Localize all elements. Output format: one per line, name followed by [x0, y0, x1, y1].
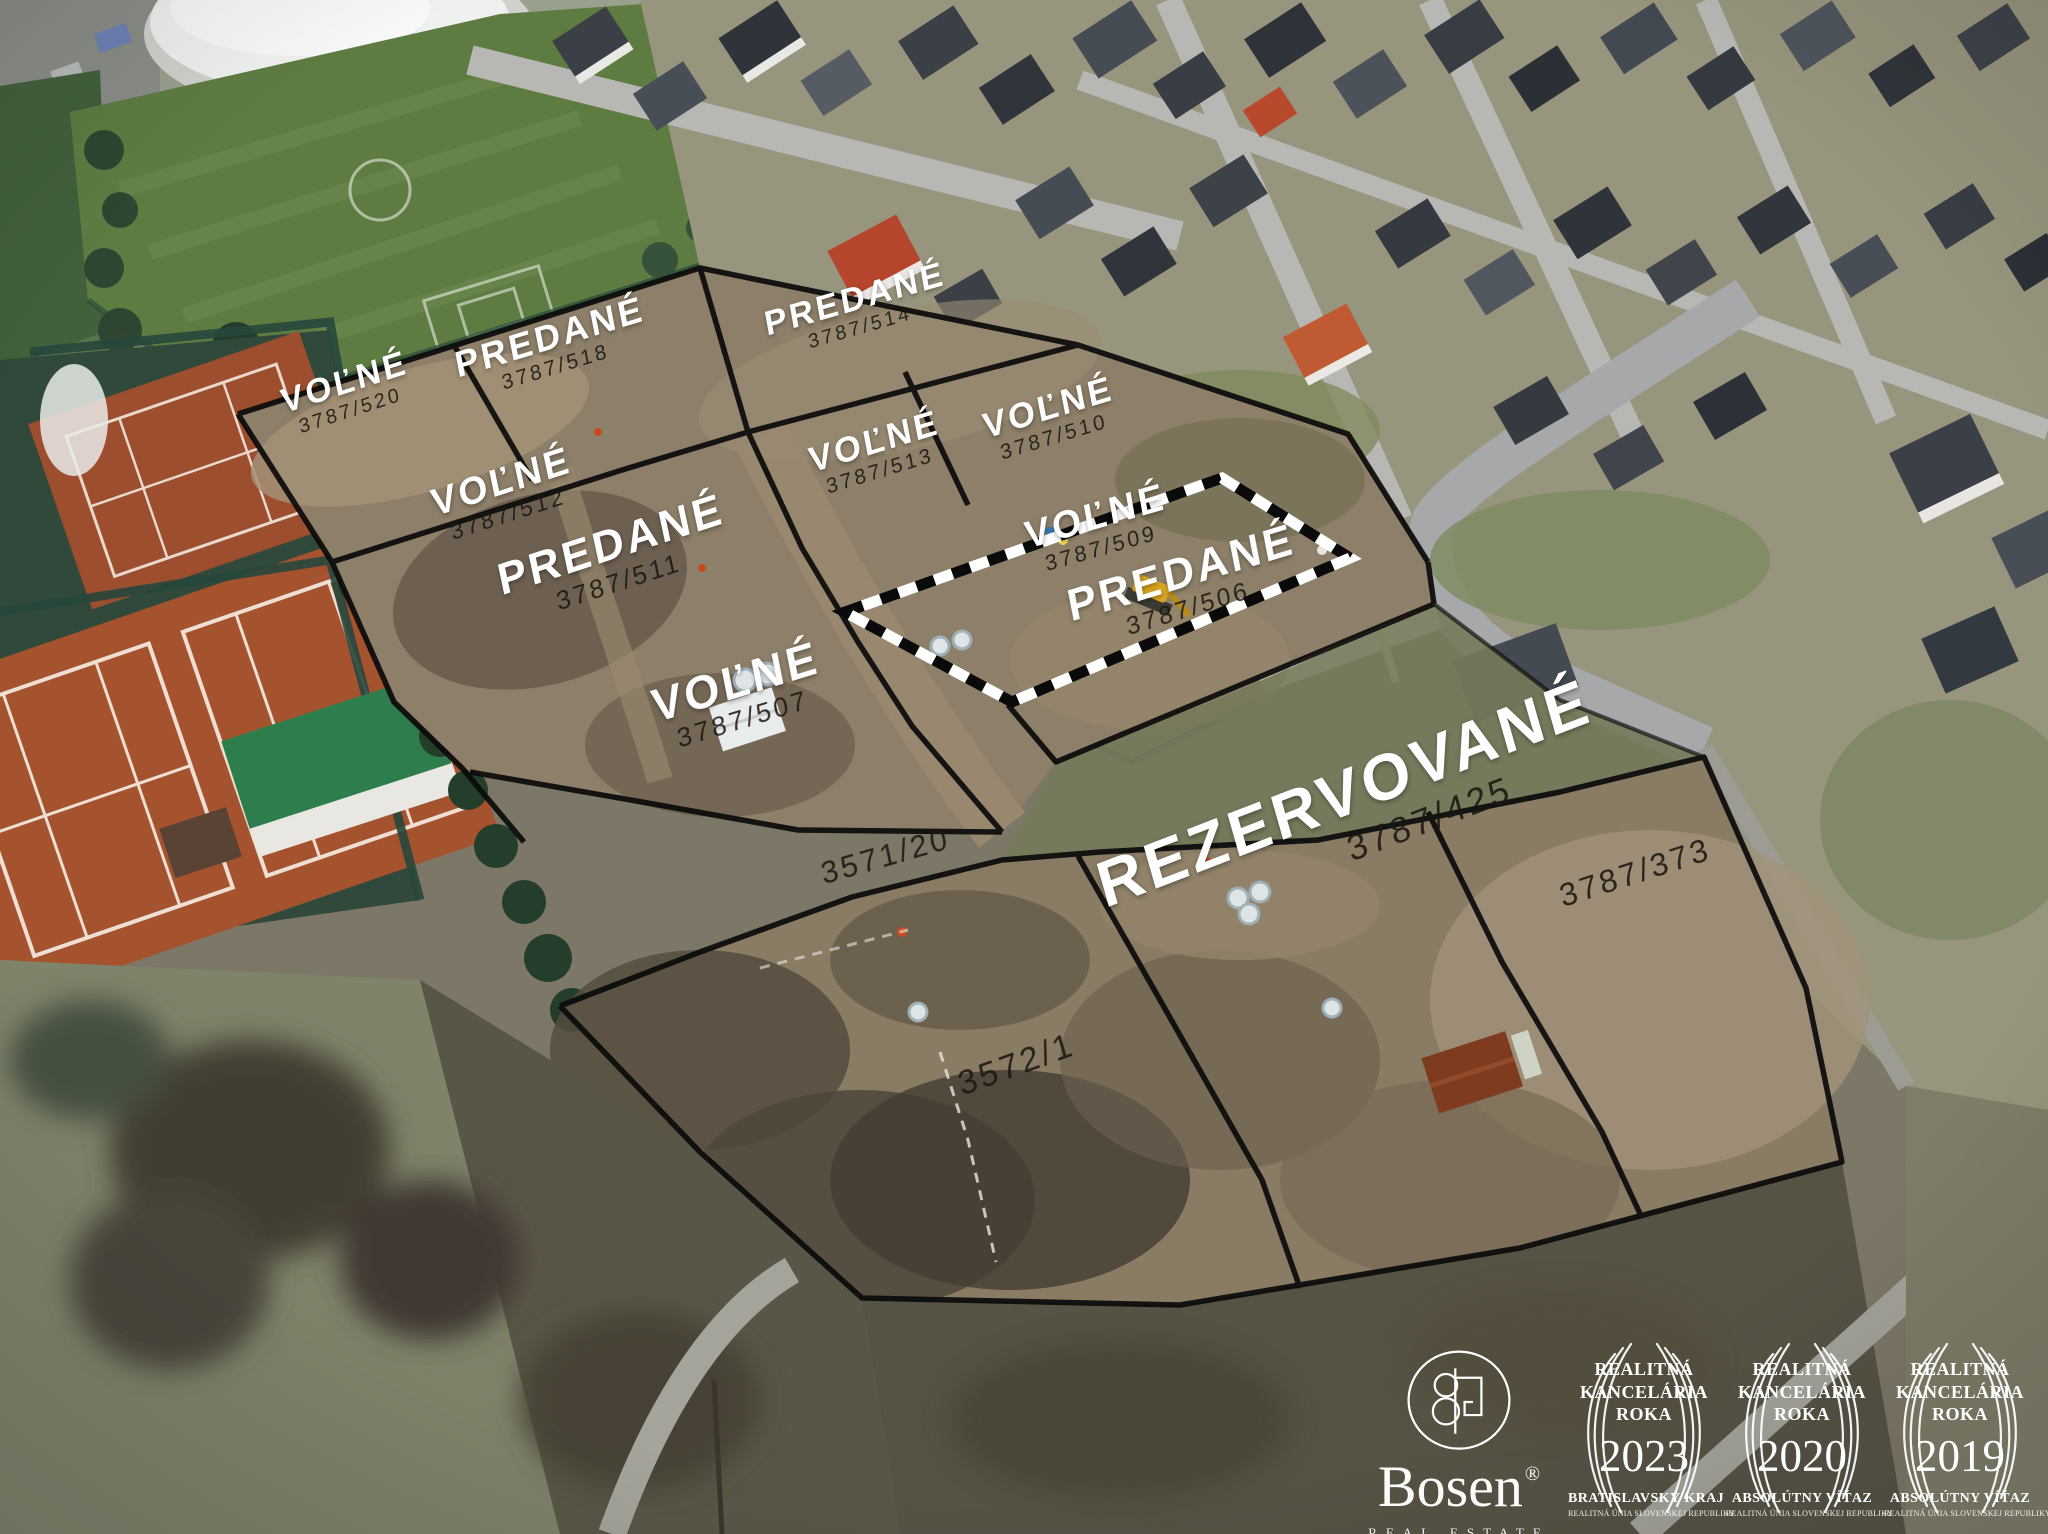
award-title: ROKA: [1726, 1403, 1878, 1426]
award-title: REALITNÁ: [1568, 1358, 1720, 1381]
brand-name: Bosen®: [1356, 1458, 1562, 1516]
award-title: KANCELÁRIA: [1884, 1381, 2036, 1404]
award-badge-2020: REALITNÁ KANCELÁRIA ROKA 2020 ABSOLÚTNY …: [1726, 1338, 1878, 1528]
watermark: Bosen® REAL ESTATE REALITNÁ KANCELÁRIA R…: [1356, 1338, 2040, 1530]
award-subtitle: ABSOLÚTNY VÍŤAZ: [1726, 1491, 1878, 1507]
award-title: REALITNÁ: [1726, 1358, 1878, 1381]
award-title: ROKA: [1884, 1403, 2036, 1426]
award-badge-2019: REALITNÁ KANCELÁRIA ROKA 2019 ABSOLÚTNY …: [1884, 1338, 2036, 1528]
award-title: ROKA: [1568, 1403, 1720, 1426]
award-year: 2019: [1884, 1434, 2036, 1479]
award-org: REALITNÁ ÚNIA SLOVENSKEJ REPUBLIKY: [1568, 1509, 1720, 1518]
award-year: 2023: [1568, 1434, 1720, 1479]
award-org: REALITNÁ ÚNIA SLOVENSKEJ REPUBLIKY: [1884, 1509, 2036, 1518]
award-subtitle: BRATISLAVSKÝ KRAJ: [1568, 1491, 1720, 1507]
award-title: KANCELÁRIA: [1568, 1381, 1720, 1404]
registered-mark: ®: [1525, 1463, 1540, 1485]
bosen-monogram-icon: [1403, 1346, 1515, 1458]
bosen-logo: Bosen® REAL ESTATE: [1356, 1338, 1562, 1530]
award-org: REALITNÁ ÚNIA SLOVENSKEJ REPUBLIKY: [1726, 1509, 1878, 1518]
award-title: KANCELÁRIA: [1726, 1381, 1878, 1404]
award-title: REALITNÁ: [1884, 1358, 2036, 1381]
plot-boundaries: [0, 0, 2048, 1534]
aerial-photo: VOĽNÉ 3787/520 PREDANÉ 3787/518 PREDANÉ …: [0, 0, 2048, 1534]
award-badge-2023: REALITNÁ KANCELÁRIA ROKA 2023 BRATISLAVS…: [1568, 1338, 1720, 1528]
brand-tagline: REAL ESTATE: [1356, 1525, 1562, 1534]
award-subtitle: ABSOLÚTNY VÍŤAZ: [1884, 1491, 2036, 1507]
award-year: 2020: [1726, 1434, 1878, 1479]
